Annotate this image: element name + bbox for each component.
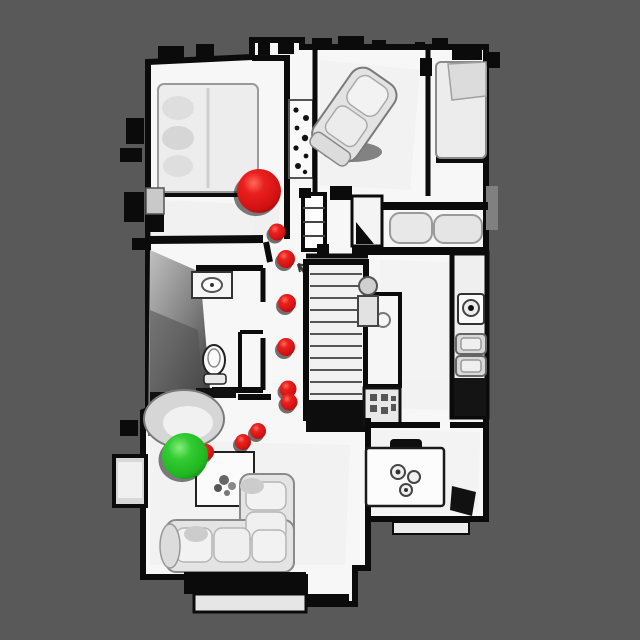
dining-table	[366, 448, 444, 506]
pillow	[162, 96, 194, 120]
nightstand	[146, 188, 164, 214]
pillow	[162, 126, 194, 150]
bedroom1-bottom-wall	[148, 239, 263, 240]
living-bottom-wall	[184, 572, 306, 594]
map-viewport[interactable]	[0, 0, 640, 640]
dresser	[420, 58, 432, 76]
left-bay-floor	[118, 462, 142, 498]
floorplan	[114, 36, 500, 612]
path-dot-0	[269, 224, 286, 241]
throw-pillow	[240, 478, 264, 494]
pillow	[163, 155, 193, 177]
plate	[408, 471, 420, 483]
cushion	[390, 213, 432, 243]
stool	[359, 277, 377, 295]
bay-rim	[307, 594, 349, 602]
throw-pillow	[184, 526, 208, 542]
railing-post	[330, 186, 352, 200]
dining-step	[393, 522, 469, 534]
agent-sphere	[162, 433, 208, 479]
path-dot-6	[250, 423, 266, 439]
floorplan-canvas[interactable]	[0, 0, 640, 640]
path-dot-5	[281, 394, 298, 411]
stairwell-down-railing	[299, 188, 329, 254]
cushion	[434, 215, 482, 243]
path-dot-3	[277, 338, 295, 356]
bed2-pillow	[448, 62, 486, 100]
cushion-room	[352, 196, 488, 251]
toilet-tank	[204, 374, 226, 384]
stool-back	[358, 296, 378, 326]
porch-step	[194, 594, 306, 612]
goal-sphere	[237, 169, 281, 213]
path-dot-1	[277, 250, 295, 268]
sofa-armrest	[160, 524, 180, 568]
path-dot-2	[278, 294, 296, 312]
wall-shelf	[289, 100, 313, 178]
lower-cabinet	[454, 378, 486, 416]
path-dot-7	[235, 434, 251, 450]
doorway-jamb	[266, 242, 270, 262]
